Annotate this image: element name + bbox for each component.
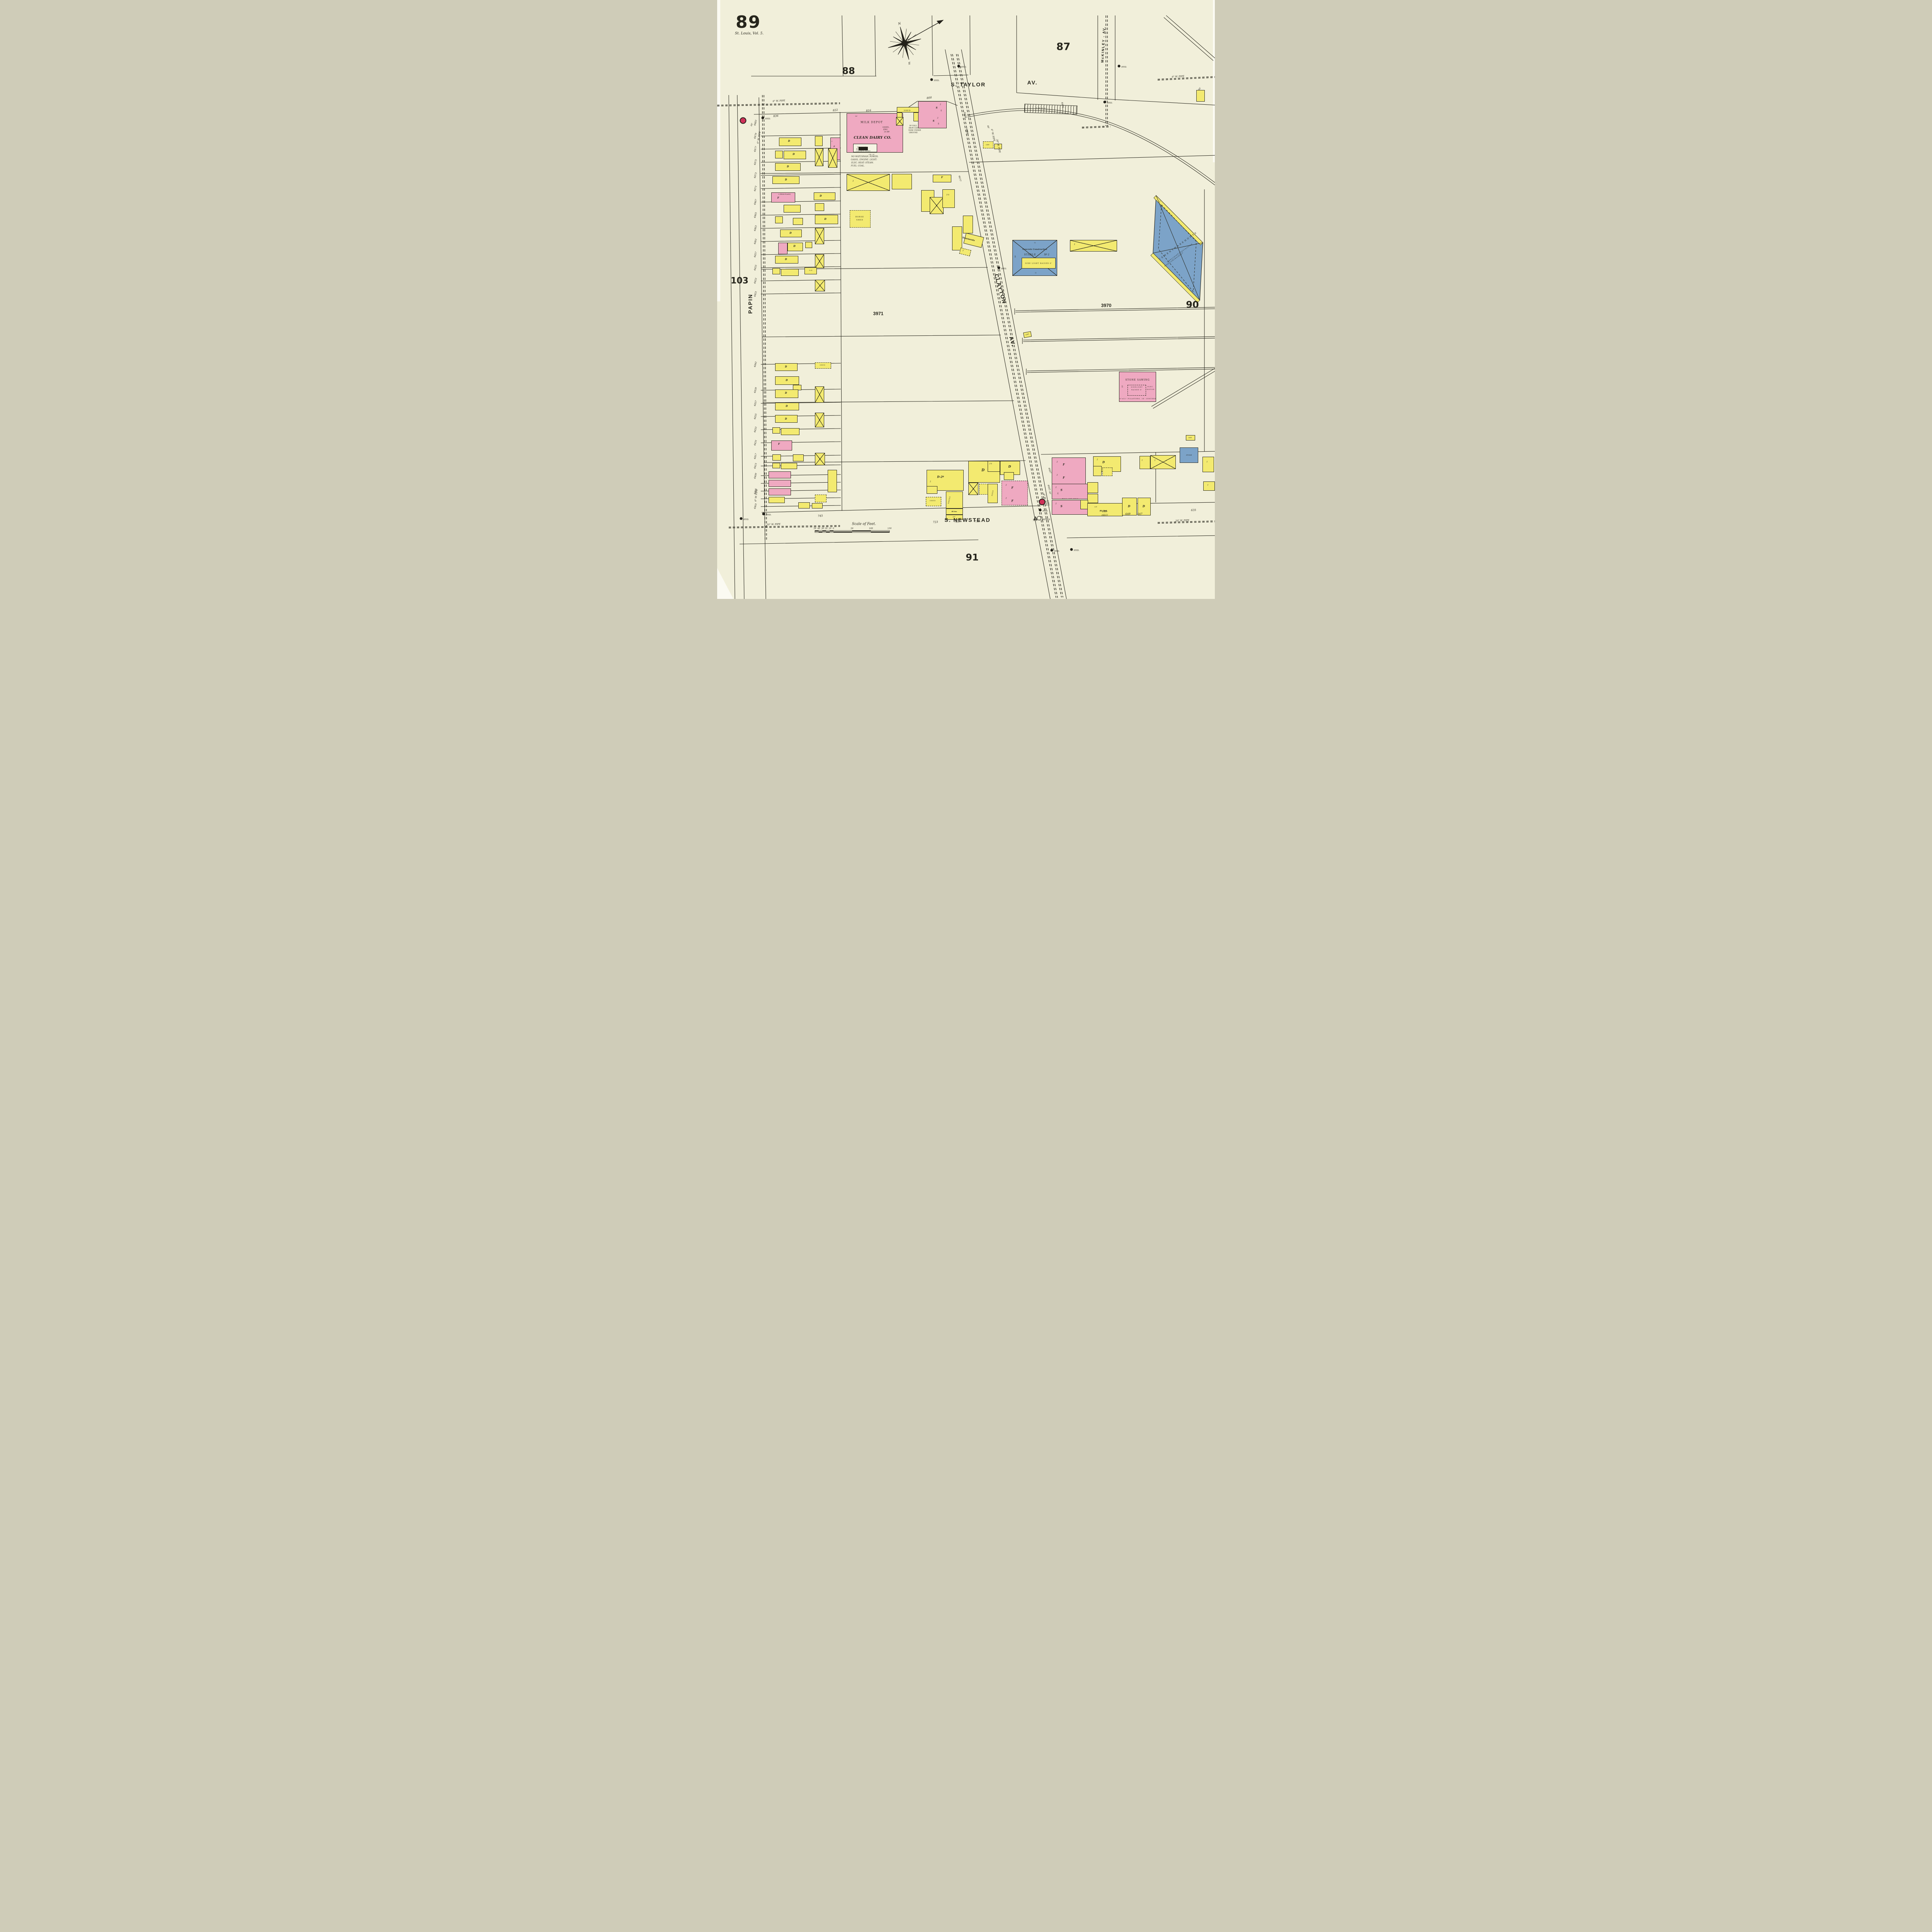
compass-rose: N E	[880, 11, 952, 70]
street-and-lot-lines	[729, 15, 1215, 599]
water-pipe-lines	[717, 15, 1215, 598]
sanborn-map-sheet: N E 88871039091S. TAYLORAV.CLAYTONAV.S. …	[717, 0, 1215, 599]
scale-bar-graphic	[815, 531, 889, 532]
svg-text:E: E	[908, 61, 911, 66]
map-linework: N E	[717, 0, 1215, 599]
railroad-tracks	[968, 15, 1215, 408]
cement-warehouse-polygon	[1151, 196, 1203, 303]
svg-text:N: N	[897, 22, 901, 26]
